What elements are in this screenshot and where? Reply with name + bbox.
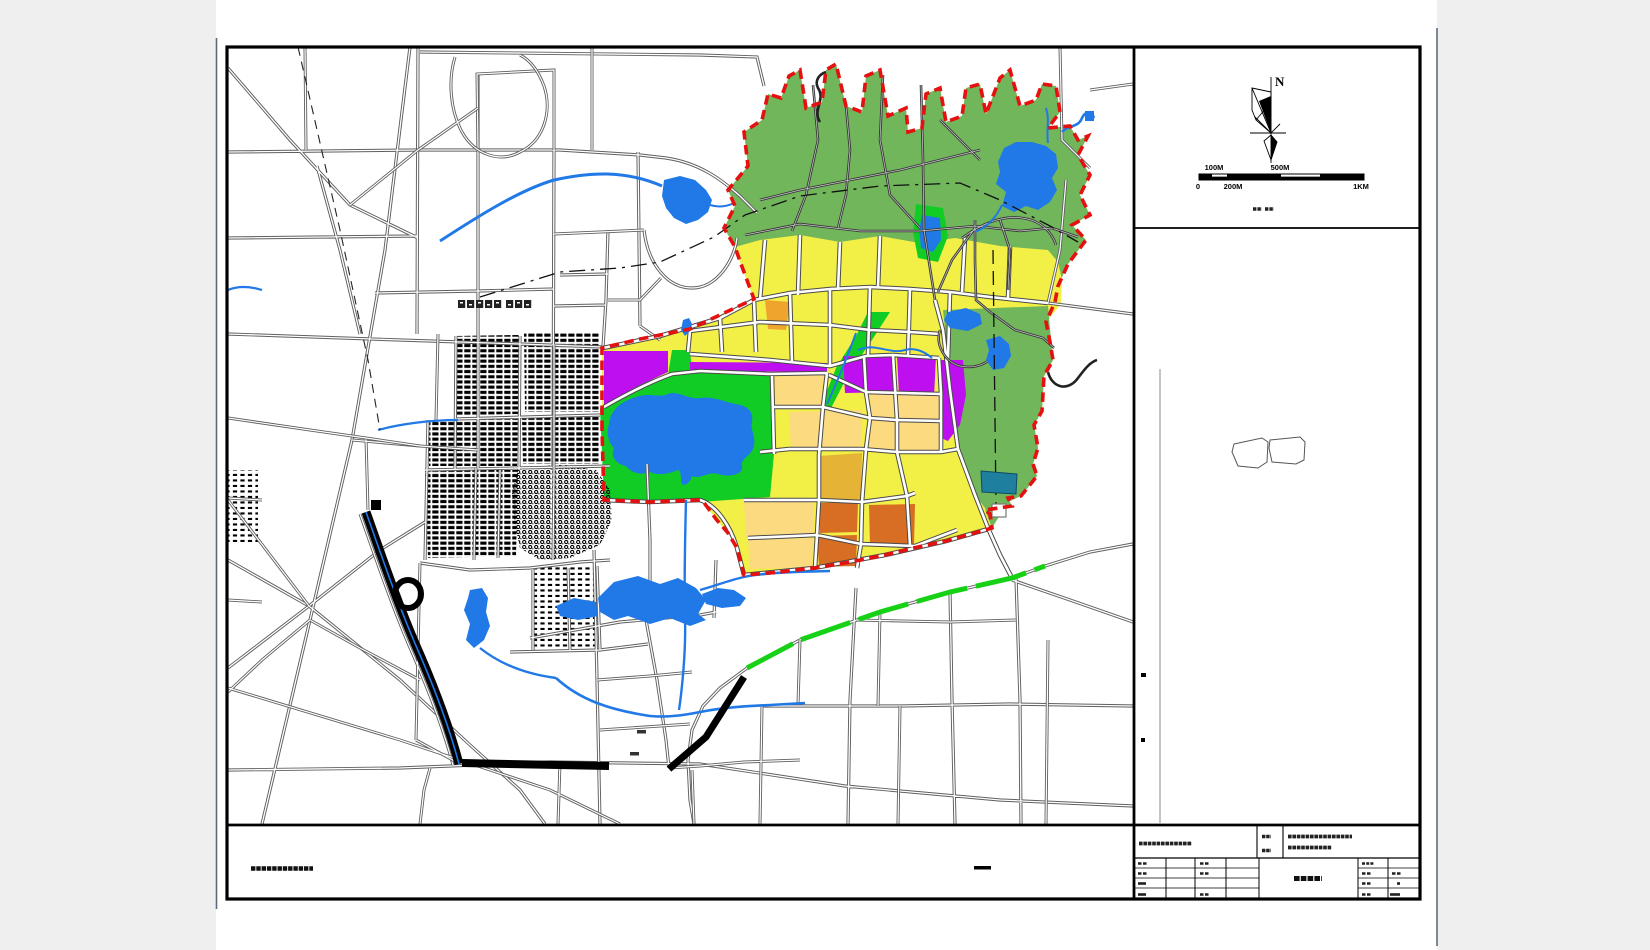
svg-text:500M: 500M (1271, 163, 1290, 172)
svg-text:N: N (1275, 74, 1285, 89)
svg-text:0: 0 (1196, 182, 1200, 191)
svg-text:100M: 100M (1205, 163, 1224, 172)
svg-text:200M: 200M (1224, 182, 1243, 191)
svg-text:1KM: 1KM (1353, 182, 1369, 191)
